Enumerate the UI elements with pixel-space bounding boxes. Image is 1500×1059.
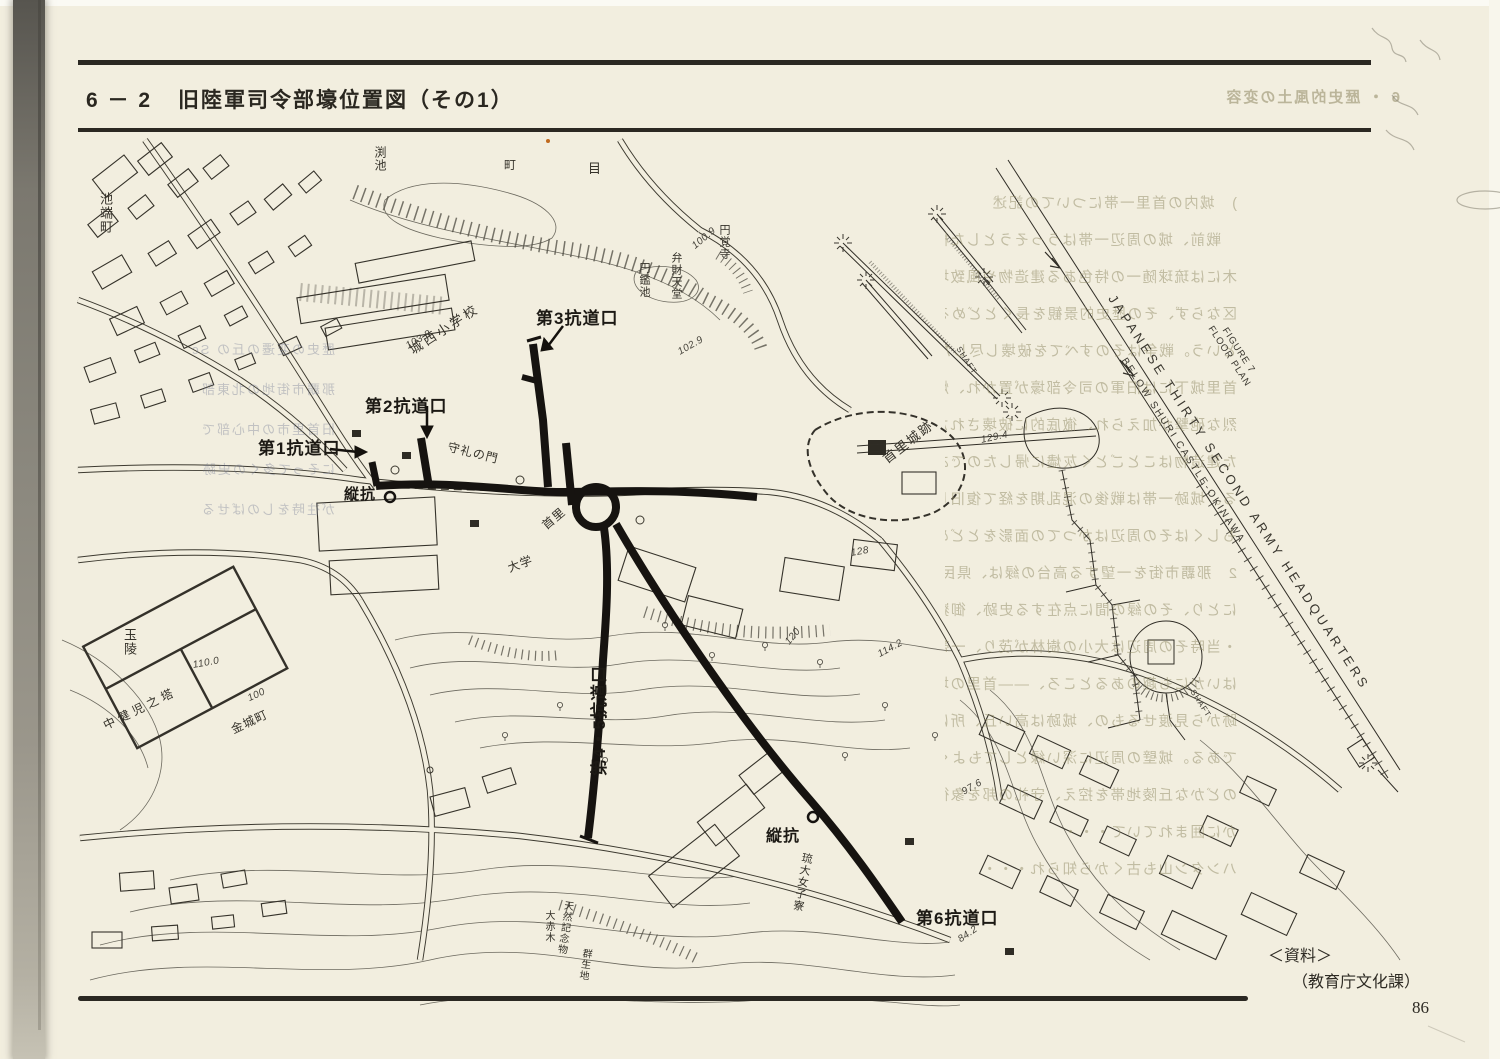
- label-benzaitendo: 弁財天堂: [668, 252, 684, 330]
- bleedthrough-line: ) 城内の首里一帯についての記述: [945, 186, 1237, 223]
- bleedthrough-line: 木には琉球随一の特色ある建造物や風致地: [945, 260, 1237, 297]
- bleedthrough-right-column: ) 城内の首里一帯についての記述 戦前、城の周辺一帯はうっそうとした樹木には琉球…: [945, 186, 1237, 889]
- bleedthrough-line: 那覇市街地の北東部: [95, 370, 335, 410]
- bleedthrough-line: 跡から見渡せるもの、城跡は高い丘、所は: [945, 704, 1237, 741]
- footer-rule: [78, 996, 1248, 1001]
- bleedthrough-line: る。城跡一帯は戦後の混乱期を経て復旧し: [945, 482, 1237, 519]
- label-me: 目: [588, 158, 602, 177]
- label-tamaudun: 玉陵: [120, 628, 139, 676]
- pencil-scribbles: [1372, 28, 1500, 1042]
- label-shaft-west: 縦抗: [344, 483, 376, 504]
- label-machi: 町: [504, 156, 517, 173]
- label-enkakuji: 円覚寺: [716, 224, 732, 282]
- bleedthrough-line: にとり、その緑の間に点在する史跡、御嶽: [945, 593, 1237, 630]
- bleedthrough-line: 2 那覇市街を一望する高台の緑は、県民: [945, 556, 1237, 593]
- label-ikehata: 池端町: [96, 192, 115, 254]
- tree-symbols: [391, 466, 938, 773]
- bleedthrough-line: 戦前、城の周辺一帯はうっそうとした樹: [945, 223, 1237, 260]
- bleedthrough-line: ハンタン山も古くから知られ・・・: [945, 852, 1237, 889]
- bleedthrough-line: 首里城下には旧軍の司令部壕が置かれ、熾: [945, 371, 1237, 408]
- bleedthrough-left-column: 歴史の変遷の丘の Sc那覇市街地の北東部旧首里市の中心部でにそって多くの史跡が往…: [95, 330, 335, 530]
- tunnel-overlay: [372, 337, 902, 922]
- source-credit: （教育庁文化課）: [1292, 968, 1420, 992]
- bleedthrough-line: 歴史の変遷の丘の Sc: [95, 330, 335, 370]
- bleedthrough-line: である。城壁の周辺に深い緑としてもよく: [945, 741, 1237, 778]
- label-pond: 渕池: [372, 146, 389, 188]
- paper-speck: [546, 139, 550, 143]
- label-enkanchi: 円鑑池: [636, 262, 652, 318]
- label-adit45: 第4・5抗道口: [585, 653, 610, 788]
- bleedthrough-line: ・当時その周辺は大小の樹林が茂り、一帯: [945, 630, 1237, 667]
- label-adit6: 第6抗道口: [916, 904, 998, 929]
- scanned-page: { "page": { "header": { "section": "6 － …: [0, 0, 1500, 1059]
- bleedthrough-line: かに囲まれていて・・・: [945, 815, 1237, 852]
- label-adit2: 第2抗道口: [365, 392, 447, 417]
- bleedthrough-line: が往時をしのばせる: [95, 490, 335, 530]
- bleedthrough-line: という。戦争はそのすべてを破壊し尽した: [945, 334, 1237, 371]
- label-adit1: 第1抗道口: [258, 434, 340, 459]
- bleedthrough-line: 区ならず、その歴史的景観を長くとどめる: [945, 297, 1237, 334]
- bleedthrough-line: もしくはその周辺はかつての面影をとどめ: [945, 519, 1237, 556]
- label-adit3: 第3抗道口: [536, 304, 618, 329]
- label-monument-2: 大赤木: [541, 910, 556, 952]
- source-label: ＜資料＞: [1268, 942, 1332, 966]
- bleedthrough-line: のどかな丘陵地帯を控え、守礼の邦を象徴: [945, 778, 1237, 815]
- label-shaft-south: 縦抗: [766, 822, 800, 846]
- page-number: 86: [1412, 998, 1429, 1018]
